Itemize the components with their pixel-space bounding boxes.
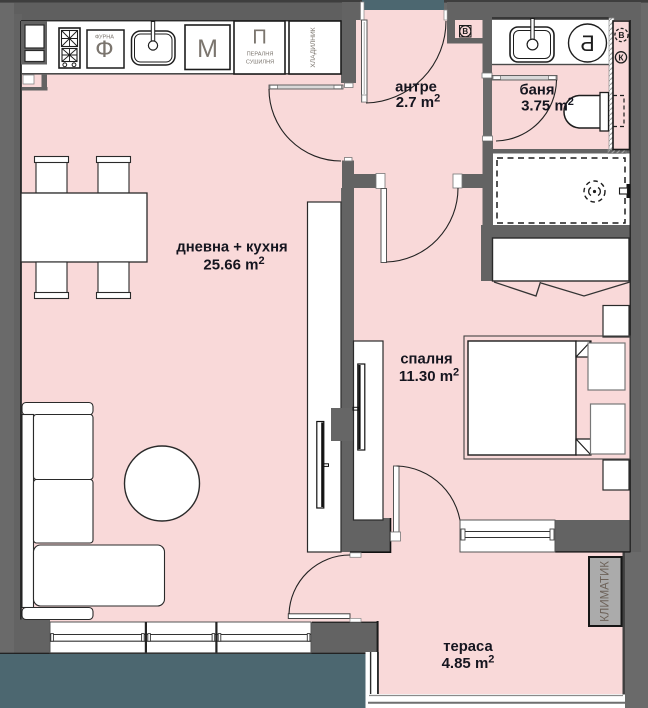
svg-text:В: В [618, 30, 624, 40]
svg-text:25.66 m2: 25.66 m2 [203, 255, 264, 274]
svg-text:тераса: тераса [443, 639, 493, 655]
svg-text:КЛИМАТИК: КЛИМАТИК [600, 561, 612, 622]
svg-text:ПЕРАЛНЯ: ПЕРАЛНЯ [247, 52, 274, 58]
svg-text:11.30 m2: 11.30 m2 [399, 367, 459, 386]
svg-text:Ф: Ф [95, 36, 114, 63]
svg-text:К: К [618, 53, 624, 63]
svg-text:баня: баня [520, 83, 555, 99]
svg-text:П: П [252, 27, 266, 49]
svg-text:М: М [197, 35, 218, 63]
svg-text:4.85 m2: 4.85 m2 [442, 654, 495, 673]
svg-text:СУШИЛНЯ: СУШИЛНЯ [246, 60, 274, 66]
svg-text:ХЛАДИЛНИК: ХЛАДИЛНИК [310, 27, 317, 67]
svg-text:2.7 m2: 2.7 m2 [396, 93, 440, 112]
svg-text:дневна + кухня: дневна + кухня [176, 240, 287, 256]
svg-text:Б: Б [580, 31, 594, 56]
svg-text:В: В [462, 27, 468, 36]
svg-text:3.75 m2: 3.75 m2 [521, 96, 574, 115]
svg-text:спалня: спалня [400, 352, 452, 368]
